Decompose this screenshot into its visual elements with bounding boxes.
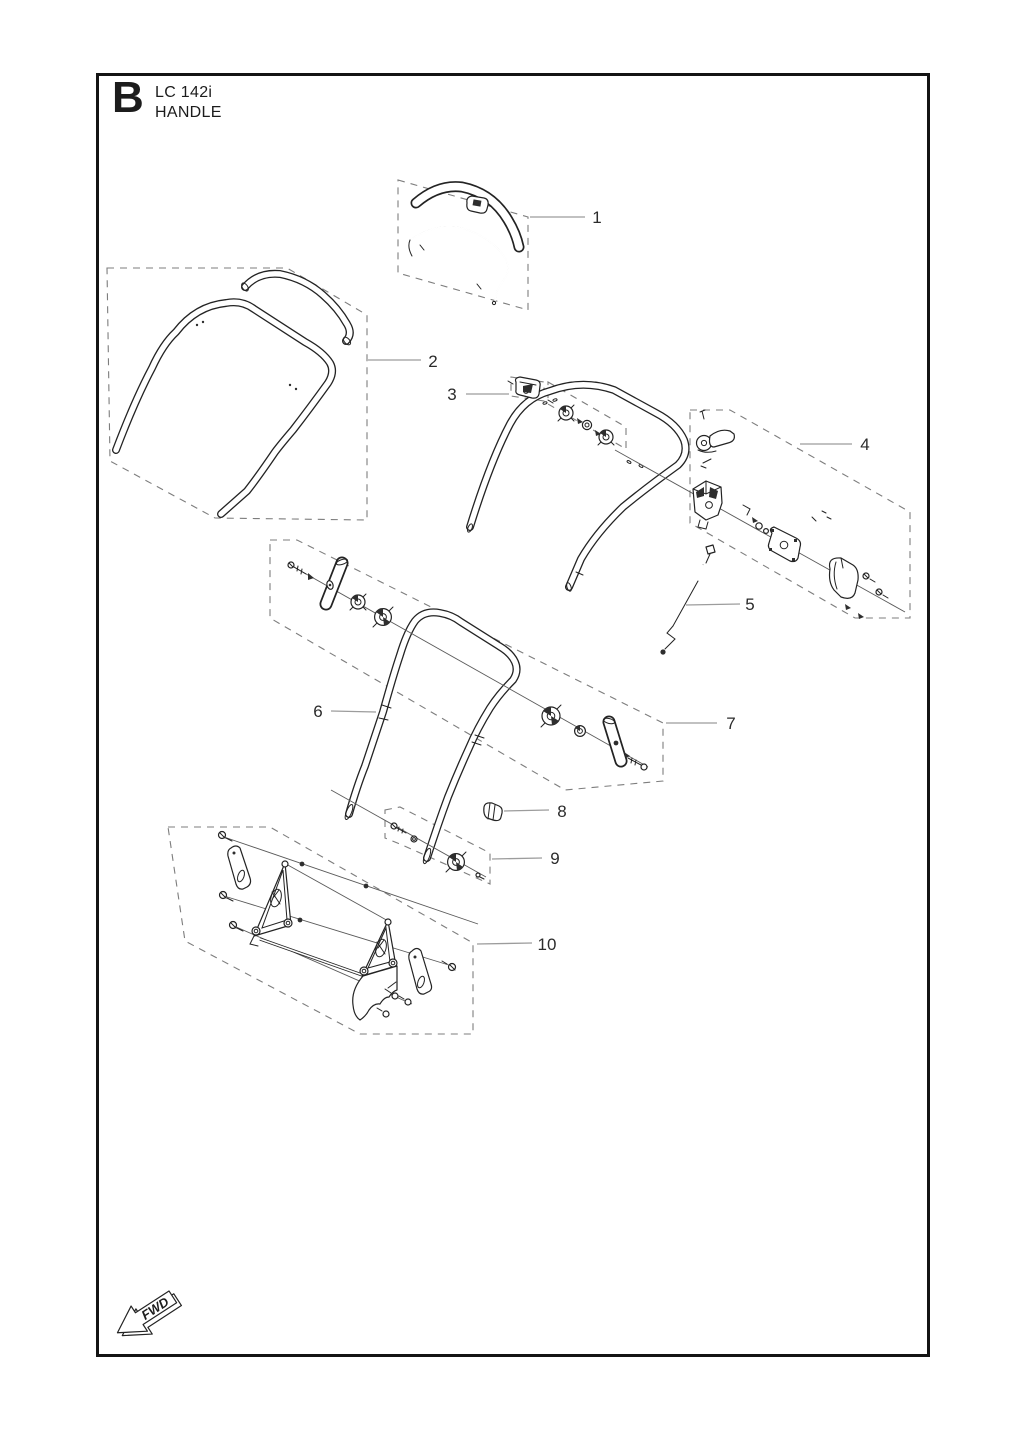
callout-label-4: 4 — [860, 435, 869, 454]
callout-label-3: 3 — [447, 385, 456, 404]
fwd-arrow: FWD — [109, 1283, 186, 1350]
callout-10: 10 — [477, 935, 556, 954]
part-2-handle-tube — [116, 274, 352, 514]
callout-label-8: 8 — [557, 802, 566, 821]
callout-7: 7 — [666, 714, 736, 733]
callout-label-5: 5 — [745, 595, 754, 614]
callout-1: 1 — [530, 208, 602, 227]
part-8-bushing — [484, 803, 502, 821]
callout-3: 3 — [447, 385, 509, 404]
callout-8: 8 — [504, 802, 567, 821]
callout-5: 5 — [686, 595, 755, 614]
right-bracket — [353, 919, 397, 1020]
callout-2: 2 — [368, 352, 438, 371]
callout-label-6: 6 — [313, 702, 322, 721]
throttle-lever — [697, 430, 735, 452]
callout-label-10: 10 — [538, 935, 557, 954]
left-bracket — [250, 861, 292, 946]
callout-9: 9 — [492, 849, 560, 868]
part-5-cable — [660, 545, 715, 655]
callout-4: 4 — [800, 435, 870, 454]
part-6-lower-handle — [344, 612, 517, 864]
callout-6: 6 — [313, 702, 376, 721]
part-10-bracket-assembly — [219, 832, 479, 1021]
middle-handle-tube — [466, 385, 685, 592]
part-6-7-hardware — [288, 558, 648, 770]
right-cover-plate — [409, 949, 432, 995]
callout-label-2: 2 — [428, 352, 437, 371]
callout-label-1: 1 — [592, 208, 601, 227]
part-3-clamp — [508, 377, 540, 398]
part-3-knob-hardware — [548, 400, 614, 445]
cover-shell — [829, 558, 858, 598]
left-cover-plate — [228, 846, 251, 889]
callout-label-7: 7 — [726, 714, 735, 733]
part-1-upper-handle — [409, 187, 519, 305]
exploded-diagram: 1 2 3 4 5 6 7 8 9 10 FWD — [0, 0, 1024, 1435]
parts-diagram-page: { "page": { "section_letter": "B", "mode… — [0, 0, 1024, 1435]
part-9-knob-bolt — [331, 790, 486, 879]
inner-plate — [768, 527, 800, 562]
switch-housing — [693, 481, 722, 529]
callout-label-9: 9 — [550, 849, 559, 868]
